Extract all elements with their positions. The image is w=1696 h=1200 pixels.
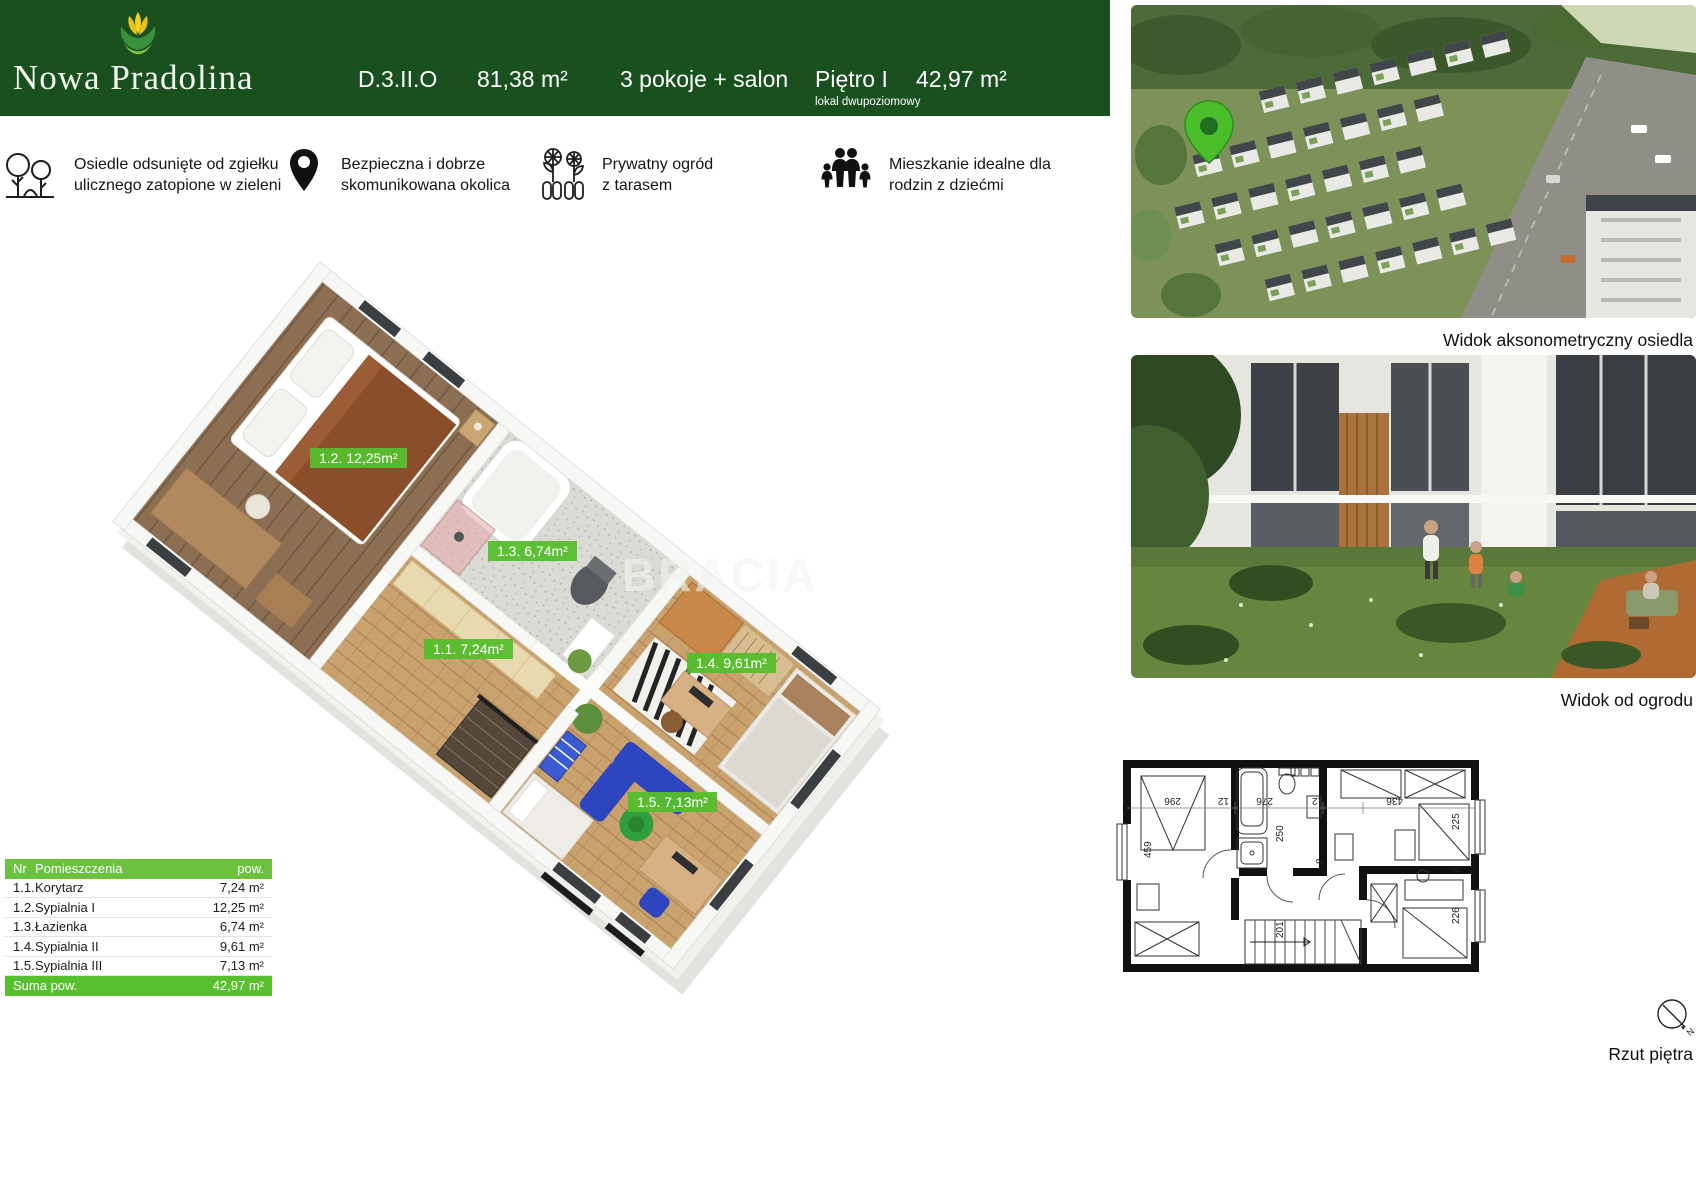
table-row: 1.4. Sypialnia II 9,61 m² [5, 937, 272, 957]
unit-rooms: 3 pokoje + salon [620, 66, 788, 93]
feature-text: Bezpieczna i dobrze skomunikowana okolic… [341, 154, 510, 198]
dim-8b: 8 [1451, 866, 1462, 872]
rooms-table: Nr Pomieszczenia pow. 1.1. Korytarz 7,24… [5, 859, 272, 996]
location-pin-icon [287, 146, 321, 198]
dim-8a: 8 [1315, 858, 1326, 864]
feature-text: Osiedle odsunięte od zgiełku ulicznego z… [74, 154, 281, 202]
feature-garden: Prywatny ogród z tarasem [538, 146, 713, 202]
compass-n-label: N [1685, 1026, 1696, 1038]
dim-225: 225 [1451, 813, 1462, 830]
north-compass-icon: N [1652, 996, 1696, 1042]
aerial-photo [1131, 5, 1696, 318]
caption-tech-plan: Rzut piętra [1608, 1044, 1693, 1065]
brand-flower-icon [114, 10, 162, 60]
dim-12b: 12 [1311, 795, 1323, 806]
feature-greenery: Osiedle odsunięte od zgiełku ulicznego z… [4, 146, 281, 202]
feature-family: Mieszkanie idealne dla rodzin z dziećmi [821, 146, 1051, 198]
dim-12a: 12 [1217, 795, 1229, 806]
dim-226: 226 [1451, 907, 1462, 924]
dim-436: 436 [1386, 795, 1403, 806]
table-row: 1.2. Sypialnia I 12,25 m² [5, 898, 272, 918]
caption-aerial: Widok aksonometryczny osiedla [1443, 330, 1693, 351]
dim-276: 276 [1256, 795, 1273, 806]
garden-photo [1131, 355, 1696, 678]
table-row: 1.3. Łazienka 6,74 m² [5, 918, 272, 938]
technical-floorplan: 296 12 276 12 436 459 250 201 8 225 8 22… [1105, 738, 1505, 996]
feature-text: Prywatny ogród z tarasem [602, 154, 713, 202]
unit-floor: Piętro I [815, 66, 888, 93]
agency-watermark: BRACIA [622, 548, 819, 602]
room-label-1-1: 1.1. 7,24m² [424, 639, 513, 659]
room-label-1-2: 1.2. 12,25m² [310, 448, 407, 468]
caption-garden: Widok od ogrodu [1561, 690, 1693, 711]
unit-floor-note: lokal dwupoziomowy [815, 96, 920, 108]
header-bar: Nowa Pradolina D.3.II.O 81,38 m² 3 pokoj… [0, 0, 1110, 116]
table-row: 1.5. Sypialnia III 7,13 m² [5, 957, 272, 977]
unit-floor-area: 42,97 m² [916, 66, 1007, 93]
dim-296: 296 [1164, 795, 1181, 806]
feature-text: Mieszkanie idealne dla rodzin z dziećmi [889, 154, 1051, 198]
brand-name: Nowa Pradolina [13, 58, 253, 98]
room-label-1-5: 1.5. 7,13m² [628, 792, 717, 812]
trees-icon [4, 146, 56, 202]
garden-icon [538, 146, 590, 202]
family-icon [821, 146, 871, 198]
room-label-1-4: 1.4. 9,61m² [687, 653, 776, 673]
unit-total-area: 81,38 m² [477, 66, 568, 93]
dim-459: 459 [1143, 841, 1154, 858]
feature-location: Bezpieczna i dobrze skomunikowana okolic… [287, 146, 510, 198]
dim-201: 201 [1275, 921, 1286, 938]
room-label-1-3: 1.3. 6,74m² [488, 541, 577, 561]
table-total-row: Suma pow. 42,97 m² [5, 976, 272, 996]
dim-250: 250 [1275, 825, 1286, 842]
table-row: 1.1. Korytarz 7,24 m² [5, 879, 272, 899]
rooms-table-header: Nr Pomieszczenia pow. [5, 859, 272, 879]
unit-code: D.3.II.O [358, 66, 437, 93]
